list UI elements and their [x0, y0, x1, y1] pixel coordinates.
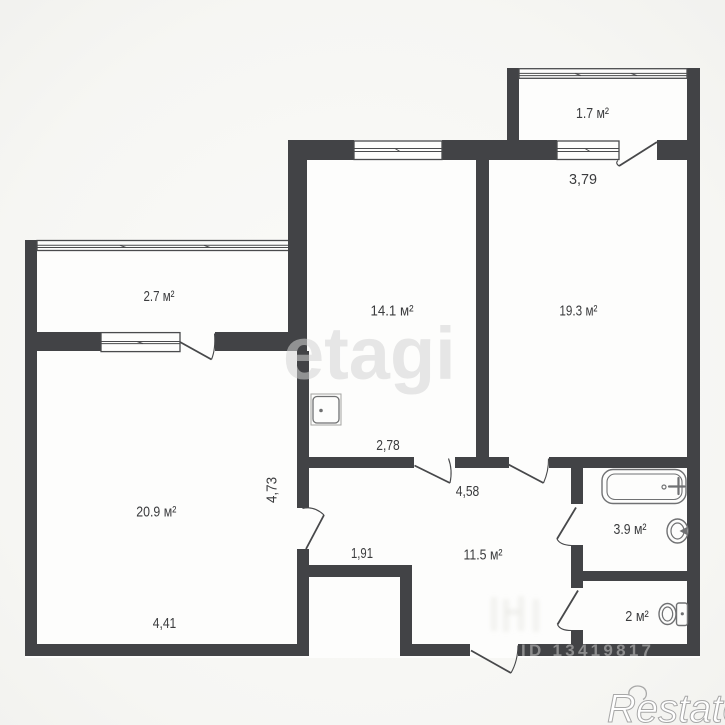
svg-text:3.9 м²: 3.9 м² — [614, 521, 647, 538]
svg-text:2 м²: 2 м² — [625, 608, 649, 625]
svg-text:ID 13419817: ID 13419817 — [521, 641, 651, 660]
svg-text:Restate: Restate — [607, 687, 725, 725]
svg-text:1,91: 1,91 — [351, 545, 373, 562]
svg-text:1.7 м²: 1.7 м² — [576, 105, 609, 122]
svg-text:20.9 м²: 20.9 м² — [136, 503, 176, 520]
svg-text:11.5 м²: 11.5 м² — [464, 547, 503, 564]
svg-text:4,58: 4,58 — [456, 483, 480, 500]
svg-text:2.7 м²: 2.7 м² — [144, 288, 175, 305]
svg-text:3,79: 3,79 — [569, 171, 597, 188]
svg-text:19.3 м²: 19.3 м² — [559, 302, 597, 319]
svg-text:4,41: 4,41 — [153, 615, 177, 632]
svg-text:2,78: 2,78 — [376, 437, 400, 454]
svg-text:etagi: etagi — [283, 312, 456, 395]
svg-text:14.1 м²: 14.1 м² — [371, 302, 414, 319]
svg-text:4,73: 4,73 — [263, 477, 280, 503]
